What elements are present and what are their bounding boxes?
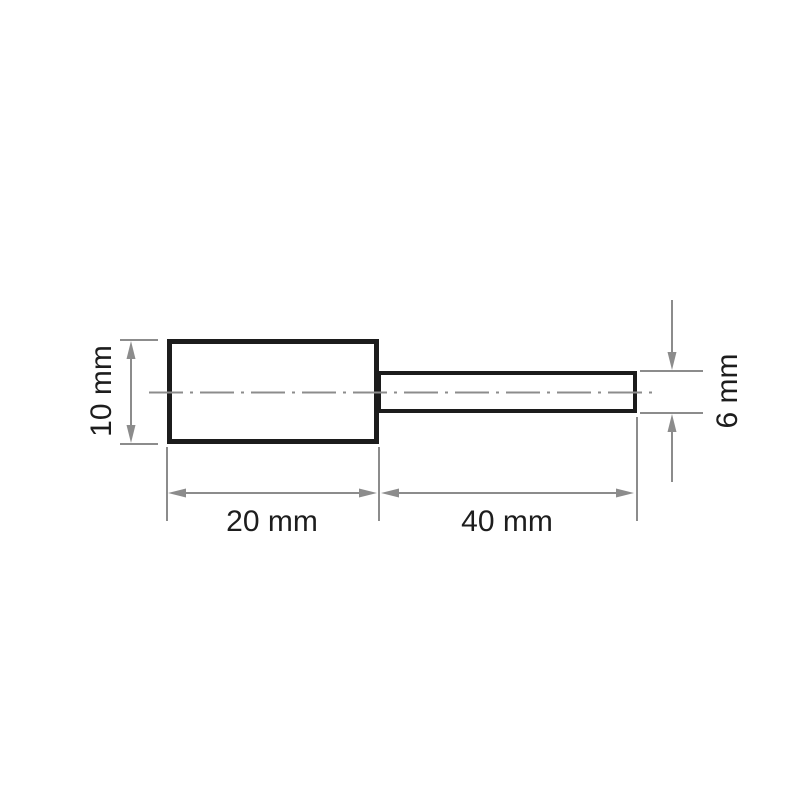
- arrowhead-down: [127, 425, 136, 443]
- arrowhead-down: [668, 352, 677, 370]
- dimension-shank-diameter: 6 mm: [640, 300, 744, 482]
- dimension-label-body-height: 10 mm: [85, 345, 118, 437]
- arrowhead-left: [168, 489, 186, 498]
- technical-drawing: 10 mm 20 mm 40 mm 6 mm: [0, 0, 800, 800]
- dimension-body-height: 10 mm: [85, 340, 158, 444]
- drawing-page: 10 mm 20 mm 40 mm 6 mm: [0, 0, 800, 800]
- arrowhead-left: [381, 489, 399, 498]
- arrowhead-up: [127, 341, 136, 359]
- arrowhead-right: [616, 489, 634, 498]
- arrowhead-right: [359, 489, 377, 498]
- arrowhead-up: [668, 414, 677, 432]
- dimension-body-length: 20 mm: [167, 447, 379, 538]
- dimension-label-shank-diameter: 6 mm: [711, 354, 744, 429]
- dimension-shank-length: 40 mm: [381, 417, 637, 538]
- dimension-label-body-length: 20 mm: [226, 505, 318, 538]
- dimension-label-shank-length: 40 mm: [461, 505, 553, 538]
